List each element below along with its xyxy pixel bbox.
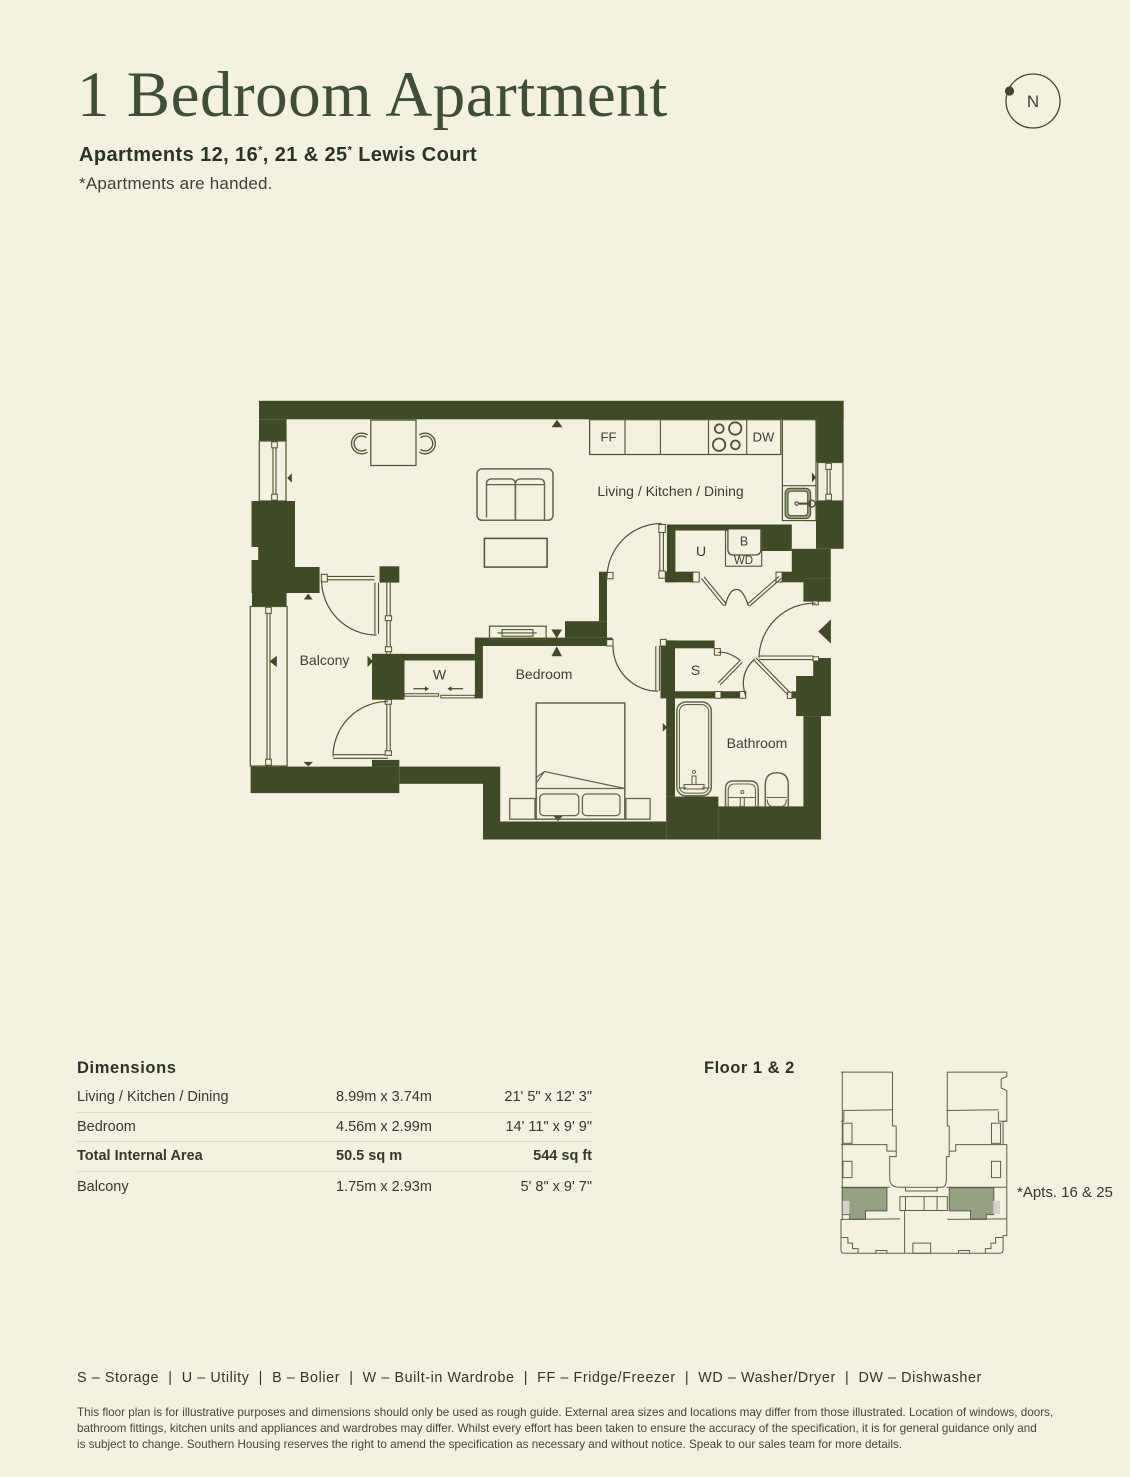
svg-text:Bathroom: Bathroom <box>727 735 788 751</box>
svg-text:U: U <box>696 543 706 559</box>
svg-text:FF: FF <box>601 430 617 445</box>
svg-text:Living / Kitchen / Dining: Living / Kitchen / Dining <box>597 483 743 499</box>
svg-text:Balcony: Balcony <box>300 652 350 668</box>
svg-text:B: B <box>740 535 748 549</box>
svg-text:DW: DW <box>753 430 775 445</box>
svg-text:WD: WD <box>734 555 753 567</box>
svg-text:Bedroom: Bedroom <box>516 666 573 682</box>
svg-text:W: W <box>433 667 447 683</box>
svg-text:S: S <box>691 662 700 678</box>
